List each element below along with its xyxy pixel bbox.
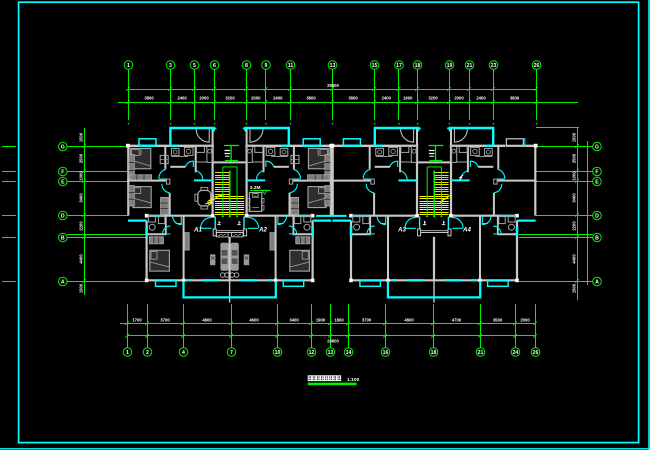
- svg-text:4: 4: [182, 350, 185, 356]
- svg-text:A: A: [61, 280, 65, 286]
- svg-text:4700: 4700: [452, 317, 462, 322]
- svg-text:A4: A4: [462, 226, 471, 233]
- svg-text:2: 2: [146, 350, 149, 356]
- svg-text:A3: A3: [397, 226, 406, 233]
- svg-text:9: 9: [265, 63, 268, 69]
- svg-text:24: 24: [513, 350, 519, 356]
- svg-text:26: 26: [534, 63, 540, 69]
- svg-text:2000: 2000: [454, 96, 464, 101]
- svg-text:1800: 1800: [334, 317, 344, 322]
- svg-text:E: E: [595, 180, 599, 186]
- svg-text:1000: 1000: [572, 171, 577, 181]
- svg-text:2400: 2400: [177, 96, 187, 101]
- svg-text:3: 3: [169, 63, 172, 69]
- svg-text:1: 1: [127, 63, 130, 69]
- svg-text:1900: 1900: [316, 317, 326, 322]
- svg-text:1500: 1500: [572, 132, 577, 142]
- svg-text:A1: A1: [193, 226, 202, 233]
- svg-text:2500: 2500: [572, 153, 577, 163]
- svg-text:3200: 3200: [428, 96, 438, 101]
- svg-text:A2: A2: [258, 226, 267, 233]
- svg-text:28800: 28800: [327, 83, 339, 88]
- svg-text:3800: 3800: [306, 96, 316, 101]
- svg-text:1500: 1500: [79, 132, 84, 142]
- svg-text:4800: 4800: [404, 317, 414, 322]
- svg-text:3500: 3500: [493, 317, 503, 322]
- svg-text:F: F: [61, 170, 64, 176]
- svg-text:2000: 2000: [520, 317, 530, 322]
- svg-text:21: 21: [467, 63, 473, 69]
- svg-text:2200: 2200: [79, 221, 84, 231]
- svg-text:E: E: [61, 180, 65, 186]
- svg-text:5: 5: [193, 63, 196, 69]
- svg-text:7: 7: [230, 350, 233, 356]
- svg-text:D: D: [61, 214, 65, 220]
- svg-text:4600: 4600: [249, 317, 259, 322]
- svg-text:3400: 3400: [79, 193, 84, 203]
- svg-text:6: 6: [213, 63, 216, 69]
- svg-text:3800: 3800: [348, 96, 358, 101]
- svg-text:D: D: [595, 214, 599, 220]
- svg-text:10: 10: [275, 350, 281, 356]
- svg-text:4800: 4800: [202, 317, 212, 322]
- svg-text:1500: 1500: [572, 283, 577, 293]
- svg-text:2400: 2400: [273, 96, 283, 101]
- svg-text:1000: 1000: [79, 171, 84, 181]
- svg-text:3800: 3800: [510, 96, 520, 101]
- svg-text:16: 16: [383, 350, 389, 356]
- svg-text:3700: 3700: [362, 317, 372, 322]
- svg-text:B: B: [61, 236, 65, 242]
- svg-text:23: 23: [491, 63, 497, 69]
- svg-text:1500: 1500: [79, 283, 84, 293]
- svg-text:14: 14: [346, 350, 352, 356]
- svg-text:19: 19: [447, 63, 453, 69]
- svg-text:1900: 1900: [403, 96, 413, 101]
- svg-text:3400: 3400: [289, 317, 299, 322]
- svg-text:1: 1: [126, 350, 129, 356]
- svg-text:2000: 2000: [251, 96, 261, 101]
- svg-text:3800: 3800: [144, 96, 154, 101]
- svg-text:13: 13: [330, 63, 336, 69]
- svg-text:11: 11: [288, 63, 294, 69]
- svg-text:13: 13: [328, 350, 334, 356]
- svg-text:3700: 3700: [160, 317, 170, 322]
- svg-text:12: 12: [309, 350, 315, 356]
- svg-text:26: 26: [533, 350, 539, 356]
- svg-text:8: 8: [245, 63, 248, 69]
- svg-text:F: F: [595, 170, 598, 176]
- svg-text:2400: 2400: [382, 96, 392, 101]
- svg-text:18: 18: [415, 63, 421, 69]
- svg-text:2400: 2400: [476, 96, 486, 101]
- svg-text:17: 17: [396, 63, 402, 69]
- svg-text:1700: 1700: [132, 317, 142, 322]
- svg-text:G: G: [61, 145, 65, 151]
- svg-text:3200: 3200: [225, 96, 235, 101]
- svg-text:2500: 2500: [79, 153, 84, 163]
- svg-text:4400: 4400: [79, 254, 84, 264]
- svg-text:1:100: 1:100: [347, 377, 360, 383]
- svg-text:3400: 3400: [572, 193, 577, 203]
- svg-text:G: G: [595, 145, 599, 151]
- svg-text:2200: 2200: [572, 221, 577, 231]
- svg-text:A: A: [595, 280, 599, 286]
- svg-text:4400: 4400: [572, 254, 577, 264]
- svg-text:B: B: [595, 236, 599, 242]
- svg-text:18: 18: [431, 350, 437, 356]
- svg-text:15: 15: [372, 63, 378, 69]
- svg-text:28800: 28800: [327, 338, 339, 343]
- svg-text:21: 21: [478, 350, 484, 356]
- svg-text:2000: 2000: [199, 96, 209, 101]
